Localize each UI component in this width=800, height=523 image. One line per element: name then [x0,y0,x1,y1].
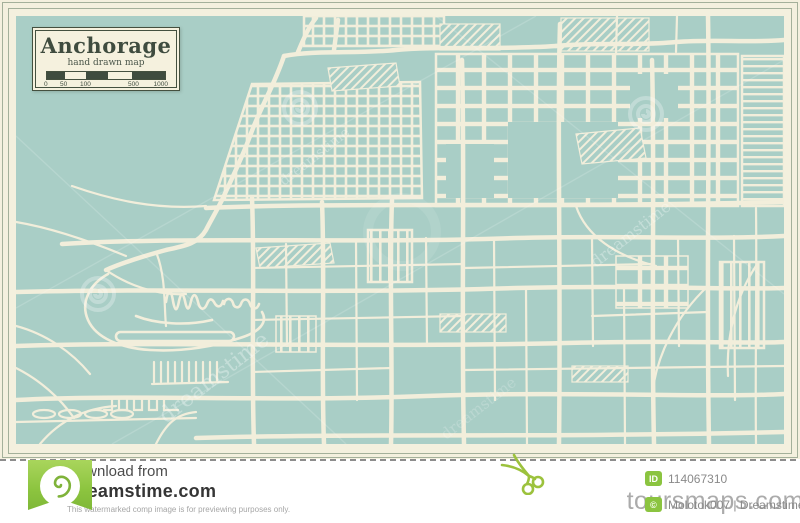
stock-image: dreamstime dreamstime dreamstime dreamst… [0,0,800,460]
image-id-value: 114067310 [668,472,727,486]
image-credit-value: Molotok007 | Dreamstime.com [668,498,800,512]
image-id-row: ID 114067310 [645,471,800,486]
page: dreamstime dreamstime dreamstime dreamst… [0,0,800,517]
dreamstime-logo [40,466,80,506]
scale-label-50: 50 [60,81,67,88]
map-title-box: Anchorage hand drawn map 0 50 100 500 10… [32,27,180,91]
map-title-box-inner: Anchorage hand drawn map 0 50 100 500 10… [35,30,177,88]
dreamstime-spiral-icon [45,471,75,501]
watermark-disclaimer: This watermarked comp image is for previ… [67,505,290,514]
scale-label-500: 500 [128,81,139,88]
scale-bar [46,71,166,80]
scale-label-1000: 1000 [154,81,168,88]
image-meta: ID 114067310 © Molotok007 | Dreamstime.c… [645,471,800,523]
scale-labels: 0 50 100 500 1000 [44,81,168,89]
id-badge: ID [645,471,662,486]
dreamstime-site-name: Dreamstime.com [67,481,290,502]
scissors-icon [498,453,550,495]
footer-bar: Download from Dreamstime.com This waterm… [0,459,800,517]
download-text-block: Download from Dreamstime.com This waterm… [67,463,290,514]
map-subtitle: hand drawn map [36,58,176,68]
image-credit-row: © Molotok007 | Dreamstime.com [645,497,800,512]
cut-dashed-line [0,459,800,461]
scale-label-0: 0 [44,81,48,88]
scale-label-100: 100 [80,81,91,88]
download-from-label: Download from [67,463,290,480]
copyright-badge: © [645,497,662,512]
map-title: Anchorage [36,34,176,58]
